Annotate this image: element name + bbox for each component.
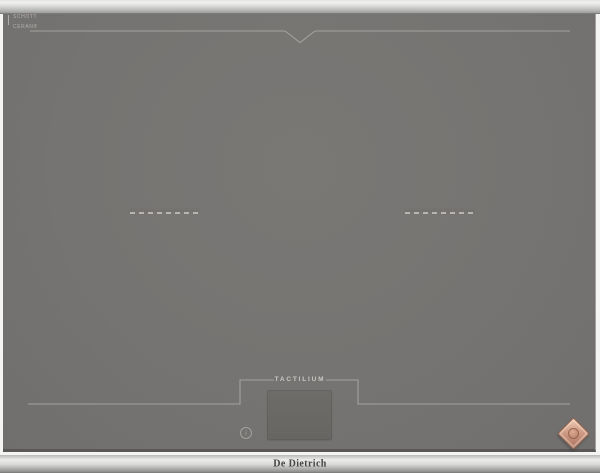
right-zone-dashed-marker	[405, 212, 475, 214]
info-icon: i	[240, 427, 252, 439]
front-steel-trim: De Dietrich	[0, 455, 600, 473]
rear-centering-line-v-notch	[30, 31, 570, 43]
control-demarcation-right	[326, 380, 570, 404]
brand-wordmark: De Dietrich	[273, 459, 327, 470]
control-demarcation-left	[28, 380, 274, 404]
left-zone-dashed-marker	[130, 212, 200, 214]
de-dietrich-diamond-logo	[558, 418, 588, 448]
tactilium-label: TACTILIUM	[255, 376, 345, 383]
product-photo-induction-hob: { "product": { "brand": "De Dietrich", "…	[0, 0, 600, 472]
touchscreen-display[interactable]	[267, 390, 332, 440]
diamond-center-medallion	[568, 428, 579, 439]
